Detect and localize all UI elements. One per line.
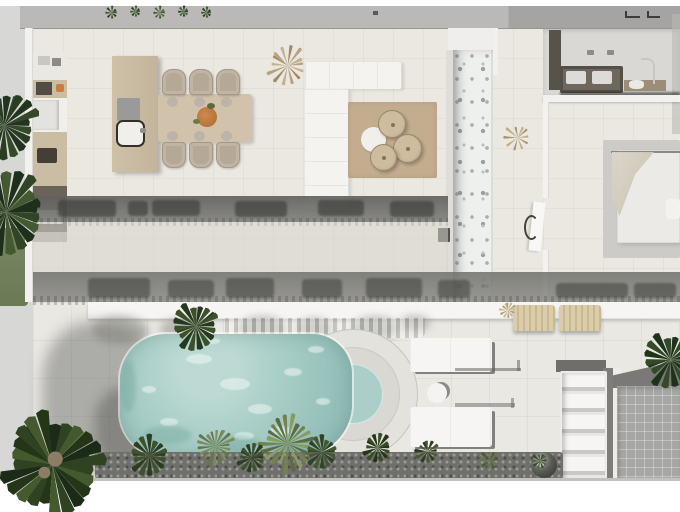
table-centerpiece [197,107,217,127]
bottom-margin [0,481,680,512]
decor-sphere [531,452,557,478]
pergola-shadow-line [455,368,521,371]
water-shadow [144,426,192,444]
island-faucet-icon [140,128,146,133]
dining-chair [162,69,186,95]
shade-furniture-shadow [318,200,364,216]
shade-furniture-shadow [128,201,148,216]
shade-furniture-shadow [152,200,200,216]
water-sparkle [160,418,178,426]
coffee-table [370,144,397,171]
pool-daybed [410,338,492,372]
wall-accessory [587,50,594,55]
counter-item [52,58,61,66]
counter-item [56,84,64,92]
scene [0,0,680,512]
cooktop-appliance [36,82,52,95]
centerpiece-leaf [193,119,200,124]
coffee-machine [38,56,50,65]
sofa-chaise [305,89,349,210]
wall-mark [373,11,378,15]
pool-side-table [427,383,447,403]
pool-daybed [410,407,492,447]
water-shadow [204,436,260,452]
wall-above-stone [448,28,493,52]
place-setting [167,97,178,107]
water-sparkle [220,378,250,390]
outdoor-shelf [560,371,607,484]
east-edge-shade [672,14,680,134]
centerpiece-leaf [207,103,215,109]
gravel-bed [95,452,563,479]
shade-furniture-shadow [390,201,434,217]
place-setting [194,97,205,107]
place-setting [167,131,178,141]
water-sparkle [186,354,212,364]
bedroom-wall [543,102,549,198]
pool-water [120,334,352,456]
sink-appliance [37,148,57,163]
paver-patio [617,386,680,480]
pergola-shadow-line [517,360,520,371]
coffee-table [393,134,422,163]
door-handle-icon [524,215,539,240]
stone-accent-wall [453,50,493,303]
shade-furniture-shadow [226,278,274,298]
induction-hob [117,98,140,121]
shade-furniture-shadow [88,278,150,298]
window-glyph-icon [647,11,660,18]
pergola-shadow-line [455,403,515,407]
sun-lounger [559,305,601,331]
shade-furniture-shadow [58,200,116,217]
place-setting [194,131,205,141]
terrace-tint [33,222,448,272]
sphere-glint [537,463,544,467]
sofa-back [305,62,402,89]
drape-shadow [92,316,148,344]
dining-chair [189,142,213,168]
place-setting [221,131,232,141]
water-shadow [120,360,136,412]
west-wall [25,28,33,302]
hallway-wall [493,28,498,75]
pergola-shadow-line [511,398,514,408]
water-sparkle [204,338,220,344]
vanity-sink [592,71,612,84]
water-sparkle [248,404,272,414]
top-margin [0,0,680,6]
dining-chair [162,142,186,168]
water-sparkle [270,426,292,435]
island-sink [116,120,145,147]
shade-furniture-shadow [366,278,422,298]
bathroom-divider-wall [543,95,680,102]
wall-accessory [607,50,614,55]
north-wall [20,6,680,29]
vanity-sink [566,71,586,84]
dining-chair [216,69,240,95]
shade-furniture-shadow [235,201,287,217]
dining-chair [216,142,240,168]
basin-faucet-icon [641,58,655,84]
dining-chair [189,69,213,95]
grass-lawn [0,228,28,306]
water-sparkle [142,386,156,393]
fridge [33,100,59,130]
bed-pillow [666,199,680,219]
water-sparkle [308,346,324,353]
place-setting [221,97,232,107]
water-sparkle [316,398,330,405]
window-glyph-icon [625,11,640,18]
sun-lounger [513,305,555,331]
water-sparkle [284,368,302,376]
